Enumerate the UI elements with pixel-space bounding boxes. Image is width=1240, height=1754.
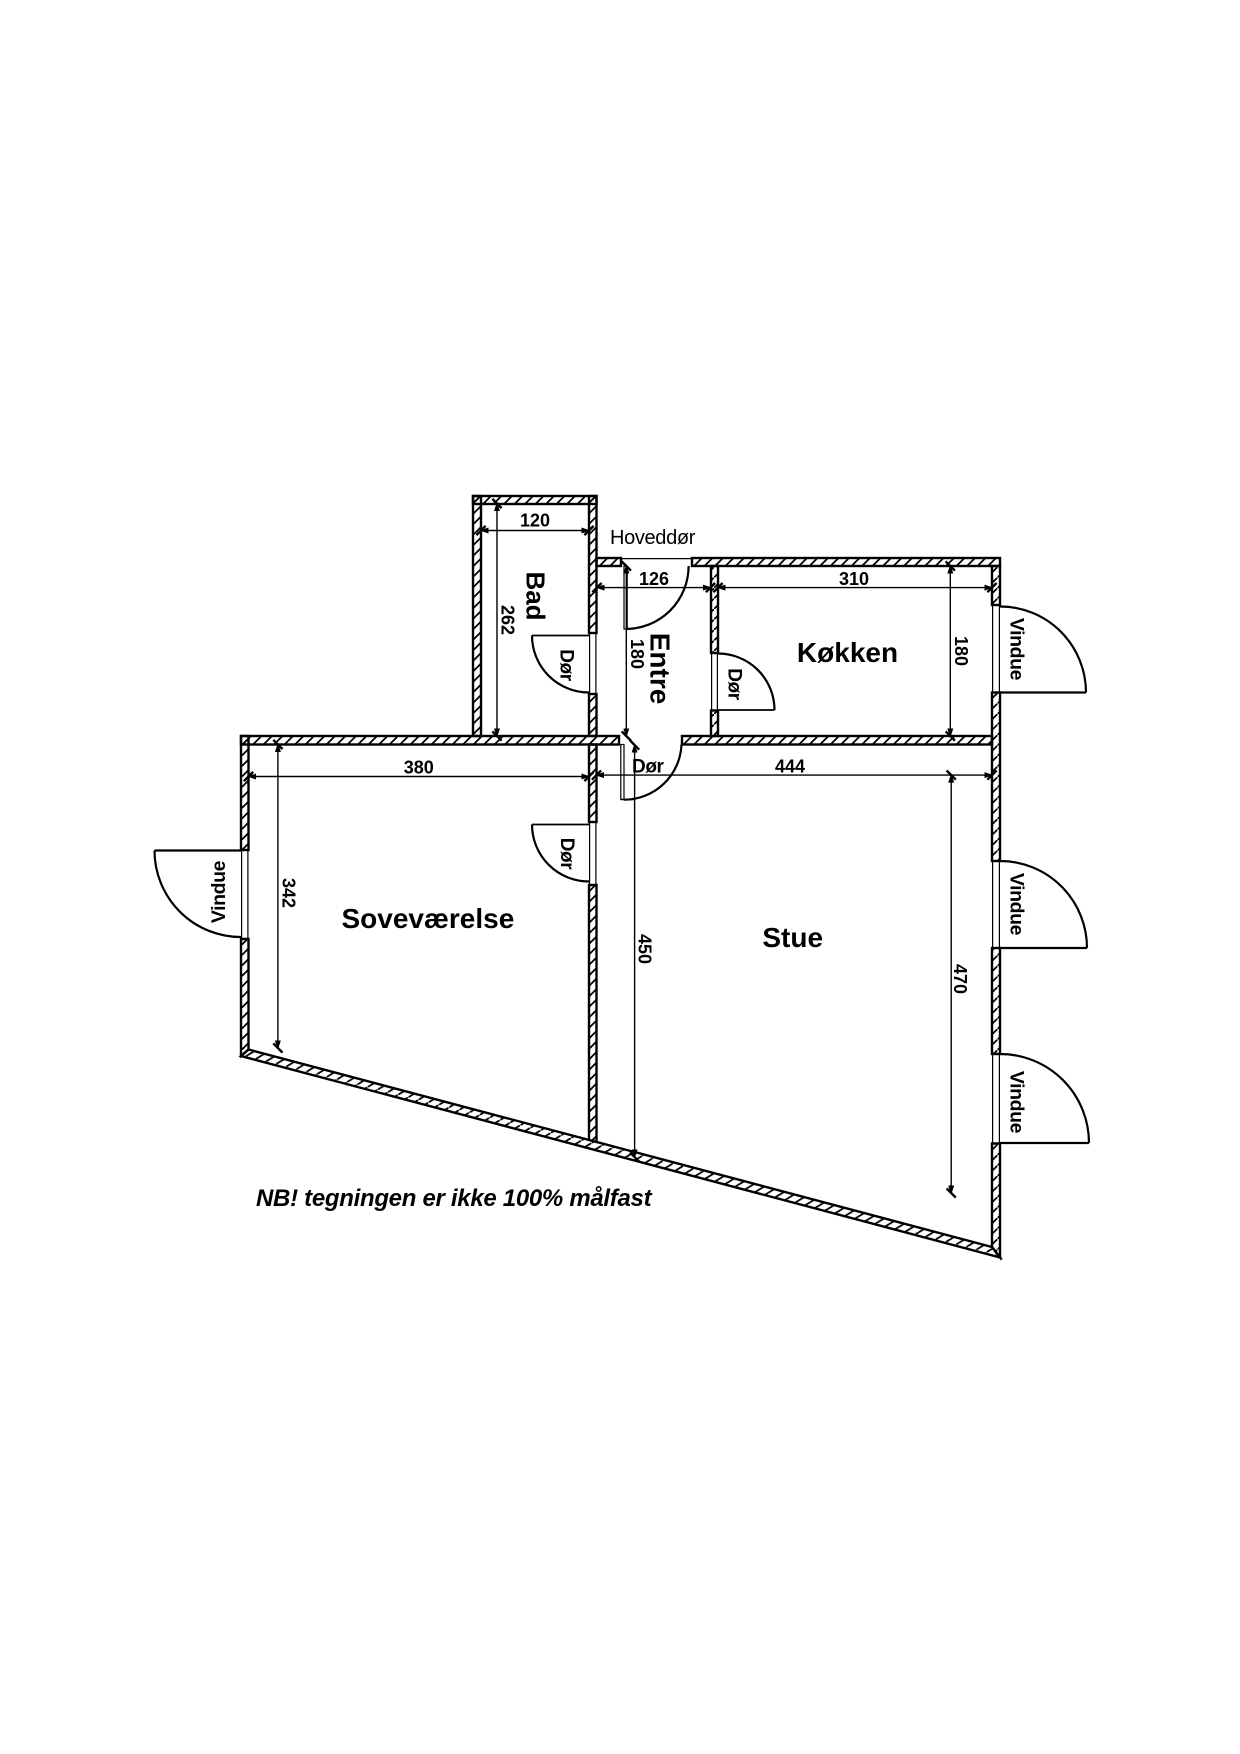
svg-text:126: 126 (639, 569, 669, 589)
svg-text:120: 120 (520, 511, 550, 531)
svg-text:Dør: Dør (723, 668, 744, 701)
svg-text:450: 450 (635, 934, 655, 964)
svg-text:Entre: Entre (645, 633, 676, 705)
svg-text:Dør: Dør (632, 757, 665, 778)
svg-text:180: 180 (627, 639, 647, 669)
svg-text:Bad: Bad (521, 571, 551, 620)
svg-text:NB! tegningen er ikke 100% mål: NB! tegningen er ikke 100% målfast (256, 1185, 653, 1212)
svg-text:Hoveddør: Hoveddør (610, 527, 696, 549)
svg-text:262: 262 (498, 605, 518, 635)
svg-text:Vindue: Vindue (1006, 1071, 1028, 1134)
svg-text:Soveværelse: Soveværelse (342, 903, 515, 934)
svg-text:Dør: Dør (556, 838, 577, 871)
svg-text:Vindue: Vindue (1006, 618, 1028, 681)
svg-text:380: 380 (404, 758, 434, 778)
svg-text:180: 180 (951, 636, 971, 666)
svg-text:Vindue: Vindue (208, 860, 230, 923)
svg-text:444: 444 (775, 757, 805, 777)
svg-text:342: 342 (278, 878, 298, 908)
svg-text:Dør: Dør (556, 649, 577, 682)
svg-text:Køkken: Køkken (797, 637, 898, 668)
svg-text:Stue: Stue (762, 922, 823, 953)
svg-text:310: 310 (839, 569, 869, 589)
svg-text:Vindue: Vindue (1006, 873, 1028, 936)
svg-text:470: 470 (950, 964, 970, 994)
